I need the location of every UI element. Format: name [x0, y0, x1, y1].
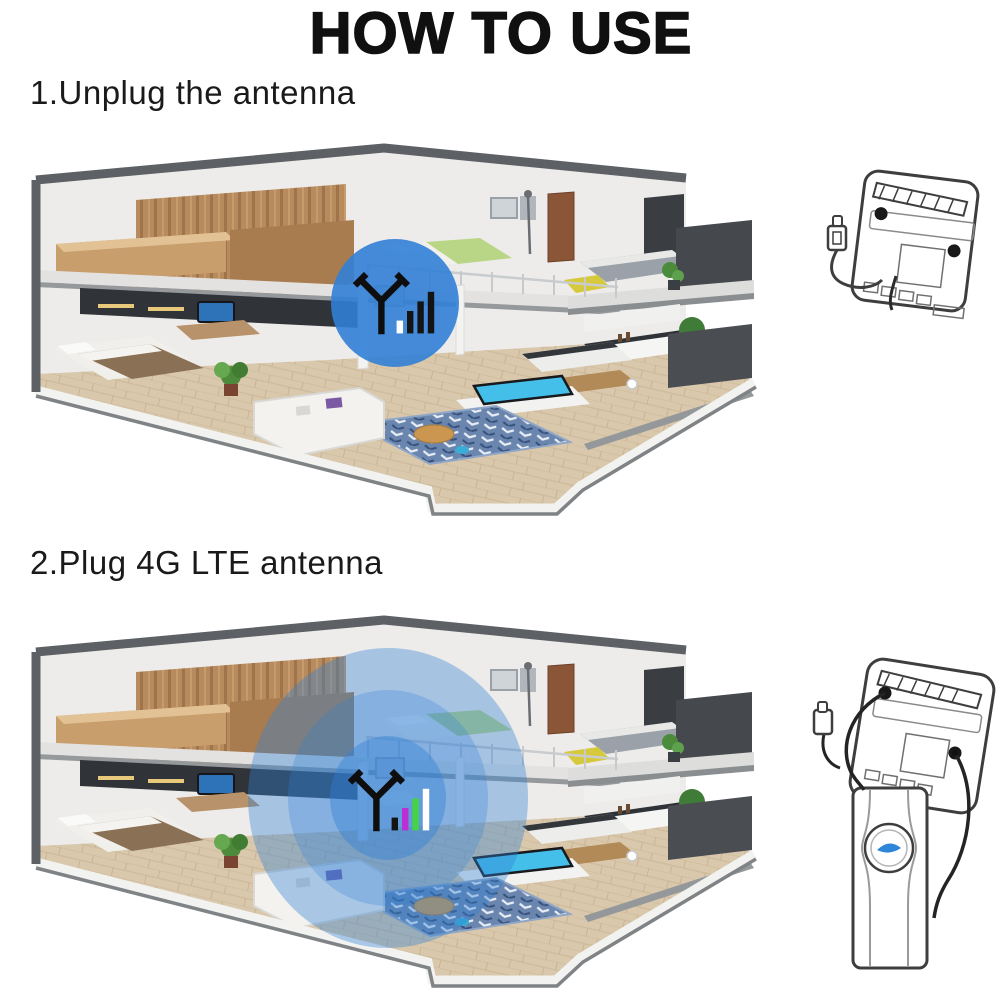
signal-bar [428, 292, 434, 334]
step-2-label: 2.Plug 4G LTE antenna [30, 544, 383, 582]
signal-bar [423, 789, 429, 831]
antenna-plug [814, 710, 832, 734]
wifi-coverage-circle [331, 239, 459, 367]
external-antenna-panel [853, 788, 927, 968]
wifi-coverage-rings-large [248, 648, 528, 948]
signal-bar [392, 818, 398, 831]
router-with-antenna-illustration [806, 636, 996, 976]
how-to-use-infographic: HOW TO USE 1.Unplug the antenna 2.Plug 4… [0, 0, 1002, 1002]
signal-bar [407, 311, 413, 333]
page-title: HOW TO USE [0, 0, 1002, 67]
signal-bar [417, 301, 423, 333]
cable [823, 734, 840, 768]
router-back-unplugged-illustration [800, 154, 1000, 326]
step-1-label: 1.Unplug the antenna [30, 74, 356, 112]
signal-bar [412, 798, 418, 830]
house-cutaway-step1 [28, 138, 792, 532]
signal-bar [402, 808, 408, 830]
wifi-coverage-spot-small [331, 239, 459, 367]
signal-bar [397, 321, 403, 334]
router-body [850, 170, 980, 319]
house-cutaway-step2 [28, 610, 792, 1004]
antenna-plug [828, 226, 846, 250]
